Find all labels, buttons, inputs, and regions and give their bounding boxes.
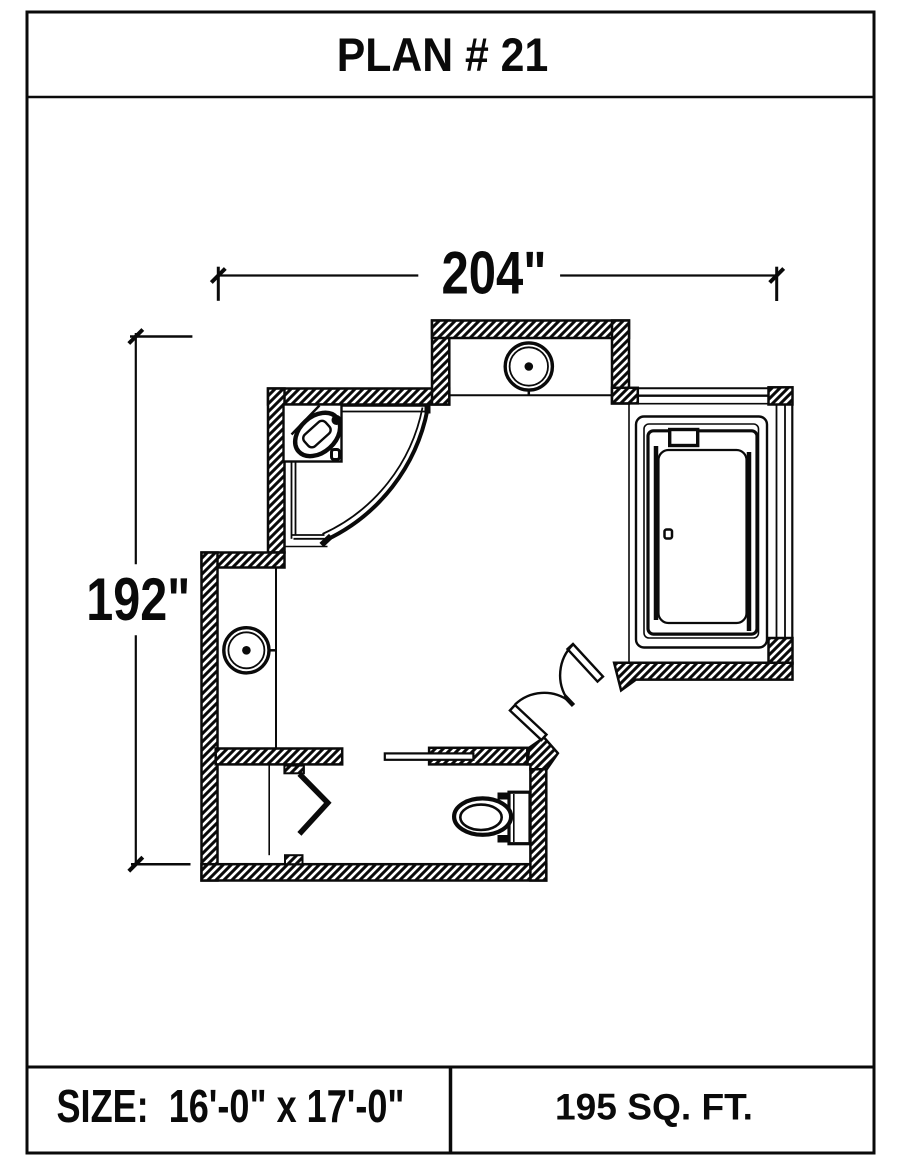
svg-text:195 SQ. FT.: 195 SQ. FT. bbox=[555, 1086, 753, 1128]
svg-text:204": 204" bbox=[442, 239, 547, 307]
svg-text:SIZE: 16'-0" x 17'-0": SIZE: 16'-0" x 17'-0" bbox=[57, 1080, 405, 1132]
svg-text:PLAN # 21: PLAN # 21 bbox=[337, 28, 549, 81]
svg-text:192": 192" bbox=[86, 565, 190, 633]
